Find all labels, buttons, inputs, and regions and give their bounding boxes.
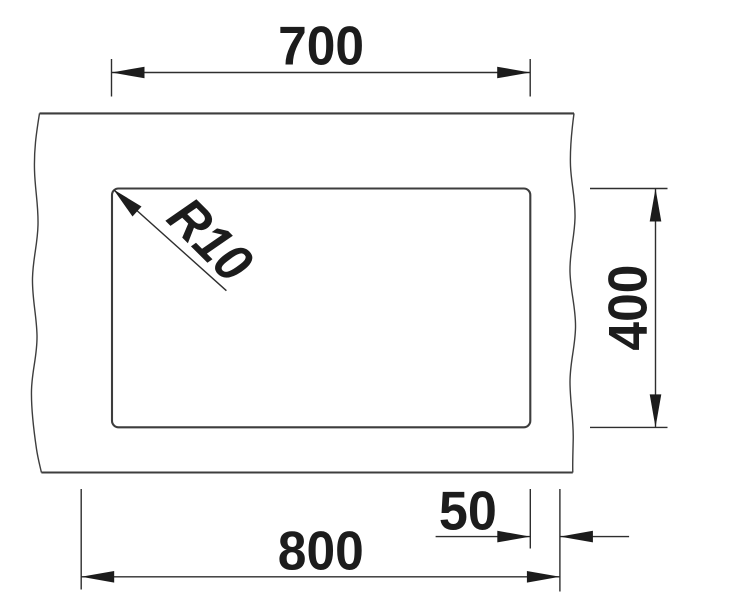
svg-text:50: 50 (439, 479, 497, 541)
svg-text:400: 400 (596, 265, 658, 351)
svg-text:R10: R10 (156, 186, 263, 293)
svg-text:700: 700 (278, 15, 364, 77)
svg-text:800: 800 (278, 519, 364, 581)
